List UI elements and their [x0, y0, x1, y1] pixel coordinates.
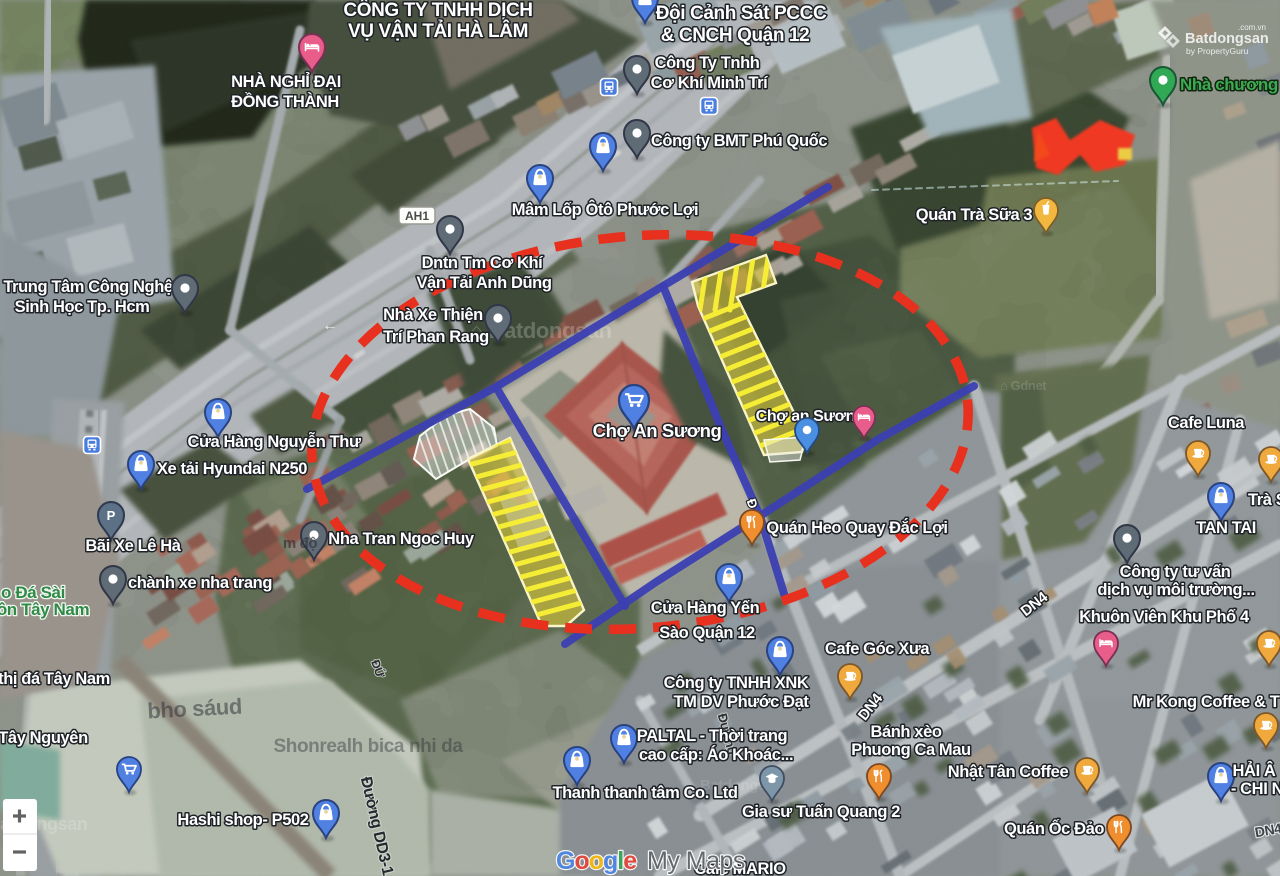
- svg-text:Nha Tran Ngoc Huy: Nha Tran Ngoc Huy: [328, 530, 475, 548]
- svg-text:bho sáud: bho sáud: [147, 694, 243, 724]
- svg-text:chành xe nha trang: chành xe nha trang: [128, 574, 272, 592]
- svg-text:Nhà chương C: Nhà chương C: [1180, 75, 1280, 94]
- svg-text:Bãi Xe Lê Hà: Bãi Xe Lê Hà: [85, 537, 181, 555]
- svg-text:NHÀ NGHỈ ĐẠI: NHÀ NGHỈ ĐẠI: [231, 72, 341, 91]
- svg-text:Xe tải Hyundai N250: Xe tải Hyundai N250: [157, 460, 307, 478]
- svg-text:Google: Google: [556, 847, 637, 875]
- svg-text:ôn Tây Nam: ôn Tây Nam: [0, 600, 89, 619]
- svg-text:HẢI Â: HẢI Â: [1233, 761, 1276, 780]
- svg-text:Cửa Hàng Nguyễn Thư: Cửa Hàng Nguyễn Thư: [187, 432, 361, 451]
- svg-text:Vận Tải Anh Dũng: Vận Tải Anh Dũng: [416, 274, 551, 292]
- svg-text:Trung Tâm Công Nghệ: Trung Tâm Công Nghệ: [3, 278, 173, 296]
- svg-text:Trí Phan Rang: Trí Phan Rang: [383, 328, 489, 346]
- svg-text:TAN TAI: TAN TAI: [1196, 519, 1256, 537]
- svg-text:Batdongsan: Batdongsan: [1185, 31, 1269, 47]
- svg-text:Tây Nguyên: Tây Nguyên: [0, 729, 88, 747]
- svg-text:Mr Kong Coffee & T: Mr Kong Coffee & T: [1133, 693, 1280, 711]
- svg-text:Công ty TNHH XNK: Công ty TNHH XNK: [664, 674, 809, 692]
- svg-text:Phuong Ca Mau: Phuong Ca Mau: [851, 741, 970, 759]
- svg-text:Shonrealh bica nhi da: Shonrealh bica nhi da: [273, 736, 463, 757]
- svg-text:AH1: AH1: [405, 209, 429, 223]
- svg-text:Trà S: Trà S: [1248, 491, 1280, 509]
- svg-text:Công Ty Tnhh: Công Ty Tnhh: [655, 54, 760, 72]
- svg-text:m độ: m độ: [283, 535, 317, 552]
- svg-text:VỤ VẬN TẢI HÀ LÂM: VỤ VẬN TẢI HÀ LÂM: [348, 20, 528, 42]
- svg-text:dịch vụ môi trường...: dịch vụ môi trường...: [1097, 581, 1254, 599]
- svg-text:Công ty tư vấn: Công ty tư vấn: [1120, 563, 1231, 581]
- svg-text:Bánh xèo: Bánh xèo: [870, 723, 941, 741]
- svg-text:by PropertyGuru: by PropertyGuru: [1186, 46, 1249, 56]
- svg-text:CÔNG TY TNHH DỊCH: CÔNG TY TNHH DỊCH: [343, 0, 532, 21]
- svg-text:Khuôn Viên Khu Phố 4: Khuôn Viên Khu Phố 4: [1079, 608, 1250, 626]
- svg-text:Đội Cảnh Sát PCCC: Đội Cảnh Sát PCCC: [656, 3, 827, 24]
- svg-text:P: P: [107, 508, 116, 523]
- svg-text:.com.vn: .com.vn: [1238, 23, 1266, 32]
- svg-text:- CHI N: - CHI N: [1231, 780, 1280, 798]
- svg-text:Cafe Góc Xưa: Cafe Góc Xưa: [825, 640, 931, 658]
- svg-text:Cơ Khí Minh Trí: Cơ Khí Minh Trí: [651, 74, 769, 92]
- svg-text:Thanh thanh tâm Co. Ltd: Thanh thanh tâm Co. Ltd: [552, 784, 737, 802]
- svg-text:Hashi shop- P502: Hashi shop- P502: [177, 811, 308, 829]
- svg-text:Mâm Lốp Ôtô Phước Lợi: Mâm Lốp Ôtô Phước Lợi: [512, 200, 699, 219]
- svg-text:Dntn Tm Cơ Khí: Dntn Tm Cơ Khí: [422, 254, 545, 272]
- svg-text:Quán Heo Quay Đắc Lợi: Quán Heo Quay Đắc Lợi: [766, 518, 947, 537]
- svg-text:PALTAL - Thời trang: PALTAL - Thời trang: [637, 727, 787, 745]
- svg-text:Cafe Luna: Cafe Luna: [1168, 414, 1245, 432]
- svg-text:Nhà Xe Thiện: Nhà Xe Thiện: [383, 306, 483, 324]
- svg-text:thị đá Tây Nam: thị đá Tây Nam: [0, 670, 110, 688]
- svg-text:cao cấp: Áo Khoác...: cao cấp: Áo Khoác...: [639, 745, 793, 764]
- svg-text:Cửa Hàng Yến: Cửa Hàng Yến: [651, 599, 760, 617]
- svg-text:⌂ Gdnet: ⌂ Gdnet: [1000, 378, 1047, 393]
- svg-text:Quán Trà Sữa 3: Quán Trà Sữa 3: [916, 206, 1033, 224]
- svg-text:ĐỒNG THÀNH: ĐỒNG THÀNH: [231, 92, 339, 111]
- svg-text:Nhật Tân Coffee: Nhật Tân Coffee: [948, 763, 1069, 781]
- svg-text:Công ty BMT Phú Quốc: Công ty BMT Phú Quốc: [651, 132, 827, 150]
- svg-text:Sào Quận 12: Sào Quận 12: [659, 624, 755, 642]
- svg-text:Quán Ốc Đảo: Quán Ốc Đảo: [1004, 818, 1104, 838]
- svg-text:My Maps: My Maps: [647, 847, 745, 875]
- svg-text:TM DV Phước Đạt: TM DV Phước Đạt: [673, 693, 809, 711]
- svg-text:Chợ An Sương: Chợ An Sương: [593, 420, 722, 441]
- svg-text:& CNCH Quận 12: & CNCH Quận 12: [661, 25, 810, 46]
- svg-text:Sinh Học Tp. Hcm: Sinh Học Tp. Hcm: [15, 298, 150, 316]
- svg-text:Gia sư Tuấn Quang 2: Gia sư Tuấn Quang 2: [742, 803, 900, 821]
